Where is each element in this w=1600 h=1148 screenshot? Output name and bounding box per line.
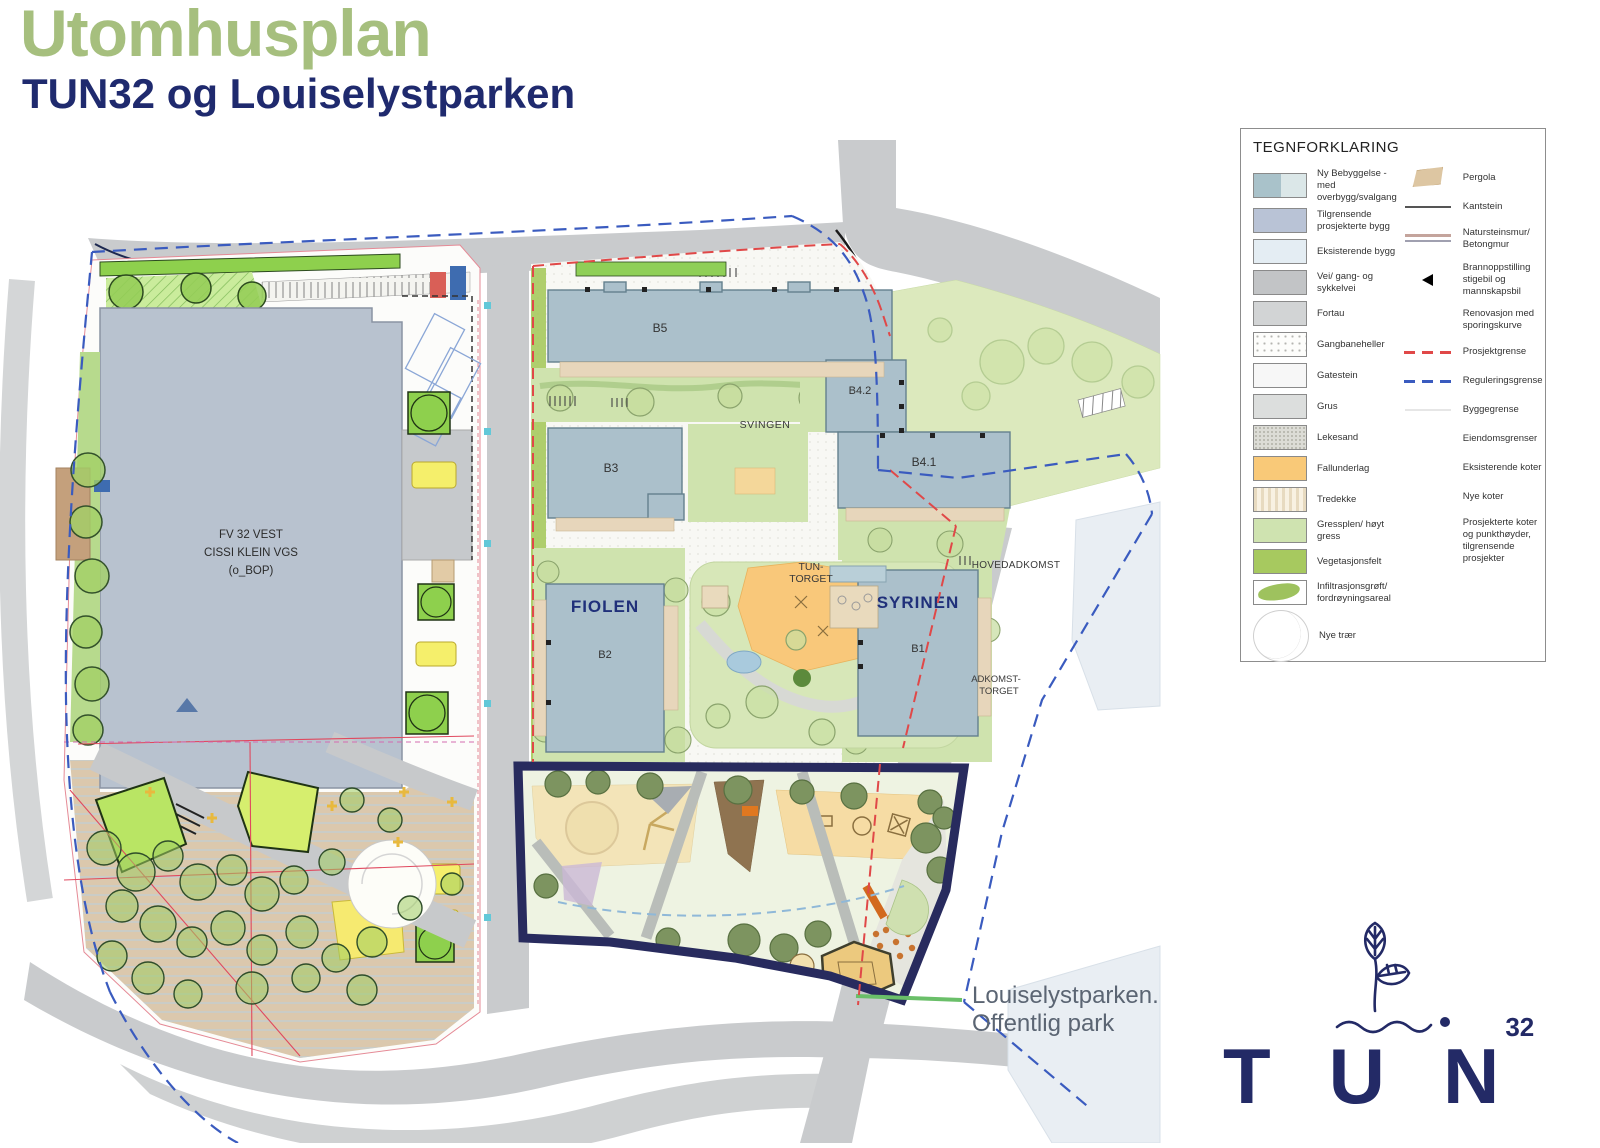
legend-item: Fallunderlag bbox=[1253, 455, 1397, 483]
legend-swatch bbox=[1253, 425, 1307, 450]
legend-item-label: Brannoppstilling stigebil og mannskapsbi… bbox=[1463, 262, 1543, 298]
legend-swatch bbox=[1253, 239, 1307, 264]
container-blue bbox=[450, 266, 466, 300]
label-fiolen: FIOLEN bbox=[571, 597, 639, 616]
legend-item: Eksisterende koter bbox=[1403, 459, 1543, 477]
legend-item: Lekesand bbox=[1253, 424, 1397, 452]
legend-item: Kantstein bbox=[1403, 198, 1543, 216]
legend-box: TEGNFORKLARING Ny Bebyggelse - med overb… bbox=[1240, 128, 1546, 662]
legend-swatch bbox=[1253, 208, 1307, 233]
legend-item-label: Pergola bbox=[1463, 172, 1496, 184]
legend-item-label: Natursteinsmur/ Betongmur bbox=[1463, 227, 1543, 251]
legend-item-label: Vegetasjonsfelt bbox=[1317, 556, 1381, 568]
label-syrinen: SYRINEN bbox=[877, 593, 960, 612]
legend-item-label: Vei/ gang- og sykkelvei bbox=[1317, 271, 1397, 295]
legend-title: TEGNFORKLARING bbox=[1253, 139, 1537, 156]
annotation-line2: Offentlig park bbox=[972, 1010, 1115, 1037]
legend-symbol bbox=[1403, 532, 1453, 550]
page-title: Utomhusplan bbox=[20, 0, 575, 66]
legend-swatch bbox=[1253, 270, 1307, 295]
legend-item: Prosjekterte koter og punkthøyder, tilgr… bbox=[1403, 517, 1543, 565]
school-site: FV 32 VEST CISSI KLEIN VGS (o_BOP) bbox=[56, 245, 481, 1062]
legend-item-label: Renovasjon med sporingskurve bbox=[1463, 308, 1543, 332]
legend-symbol bbox=[1403, 488, 1453, 506]
legend-item-label: Prosjektgrense bbox=[1463, 346, 1526, 358]
label-tun-torget-2: TORGET bbox=[789, 573, 833, 585]
school-building: FV 32 VEST CISSI KLEIN VGS (o_BOP) bbox=[100, 308, 402, 788]
legend-symbol bbox=[1403, 198, 1453, 216]
legend-item: Reguleringsgrense bbox=[1403, 372, 1543, 390]
legend-item-label: Nye koter bbox=[1463, 491, 1504, 503]
legend-item: Prosjektgrense bbox=[1403, 343, 1543, 361]
legend-symbol bbox=[1403, 372, 1453, 390]
legend-item-label: Infiltrasjonsgrøft/ fordrøyningsareal bbox=[1317, 581, 1397, 605]
existing-buildings bbox=[1008, 502, 1160, 1143]
legend-item: Fortau bbox=[1253, 300, 1397, 328]
legend-item-label: Prosjekterte koter og punkthøyder, tilgr… bbox=[1463, 517, 1543, 565]
legend-swatch bbox=[1253, 549, 1307, 574]
legend-swatch bbox=[1253, 580, 1307, 605]
logo-text: TUN bbox=[1223, 1032, 1557, 1120]
legend-item: Pergola bbox=[1403, 168, 1543, 187]
legend-item: Gangbaneheller bbox=[1253, 331, 1397, 359]
legend-item-label: Fallunderlag bbox=[1317, 463, 1369, 475]
legend-item: Grus bbox=[1253, 393, 1397, 421]
legend-item-label: Gangbaneheller bbox=[1317, 339, 1385, 351]
label-b41: B4.1 bbox=[912, 455, 937, 469]
legend-swatch bbox=[1253, 610, 1309, 662]
legend-item: Gatestein bbox=[1253, 362, 1397, 390]
page-subtitle: TUN32 og Louiselystparken bbox=[22, 70, 575, 118]
legend-item-label: Tilgrensende prosjekterte bygg bbox=[1317, 209, 1397, 233]
legend-item: Renovasjon med sporingskurve bbox=[1403, 308, 1543, 332]
legend-item-label: Fortau bbox=[1317, 308, 1344, 320]
legend-item-label: Kantstein bbox=[1463, 201, 1503, 213]
pond bbox=[727, 651, 761, 673]
legend-item-label: Ny Bebyggelse - med overbygg/svalgang bbox=[1317, 168, 1397, 204]
legend-item: Infiltrasjonsgrøft/ fordrøyningsareal bbox=[1253, 579, 1397, 607]
legend-swatch bbox=[1253, 394, 1307, 419]
legend-item: Nye koter bbox=[1403, 488, 1543, 506]
school-label-line3: (o_BOP) bbox=[229, 565, 274, 577]
legend-left-column: Ny Bebyggelse - med overbygg/svalgang Ti… bbox=[1253, 168, 1397, 665]
label-b1: B1 bbox=[911, 643, 924, 655]
legend-symbol bbox=[1403, 343, 1453, 361]
legend-swatch bbox=[1253, 173, 1307, 198]
legend-symbol bbox=[1403, 271, 1453, 289]
legend-item: Ny Bebyggelse - med overbygg/svalgang bbox=[1253, 168, 1397, 204]
legend-item-label: Eksisterende bygg bbox=[1317, 246, 1395, 258]
legend-item-label: Reguleringsgrense bbox=[1463, 375, 1543, 387]
louiselystparken bbox=[518, 766, 964, 1000]
page-header: Utomhusplan TUN32 og Louiselystparken bbox=[20, 0, 575, 118]
label-tun-torget-1: TUN- bbox=[798, 561, 824, 573]
label-adkomst-torget-2: TORGET bbox=[979, 686, 1019, 697]
plant-icon bbox=[1313, 915, 1463, 1035]
school-label-line2: CISSI KLEIN VGS bbox=[204, 547, 298, 559]
legend-swatch bbox=[1253, 301, 1307, 326]
container-red bbox=[430, 272, 446, 298]
label-b5: B5 bbox=[653, 321, 668, 335]
logo-wordmark: TUN32 bbox=[1223, 1037, 1586, 1115]
legend-item-label: Nye trær bbox=[1319, 630, 1356, 642]
legend-symbol bbox=[1403, 230, 1453, 248]
legend-swatch bbox=[1253, 332, 1307, 357]
legend-item-label: Eksisterende koter bbox=[1463, 462, 1542, 474]
trapp-p-kjeller bbox=[830, 566, 886, 582]
legend-swatch bbox=[1253, 456, 1307, 481]
legend-symbol bbox=[1403, 168, 1453, 187]
legend-item: Gressplen/ høyt gress bbox=[1253, 517, 1397, 545]
label-b2: B2 bbox=[598, 649, 611, 661]
legend-item-label: Grus bbox=[1317, 401, 1338, 413]
legend-symbol bbox=[1403, 430, 1453, 448]
legend-symbol bbox=[1403, 459, 1453, 477]
legend-swatch bbox=[1253, 363, 1307, 388]
label-svingen: SVINGEN bbox=[740, 419, 791, 431]
legend-item: Vei/ gang- og sykkelvei bbox=[1253, 269, 1397, 297]
legend-item: Eksisterende bygg bbox=[1253, 238, 1397, 266]
building-b41 bbox=[838, 432, 1010, 508]
legend-swatch bbox=[1253, 518, 1307, 543]
school-label-line1: FV 32 VEST bbox=[219, 529, 283, 541]
legend-item-label: Eiendomsgrenser bbox=[1463, 433, 1537, 445]
building-b5 bbox=[548, 290, 892, 362]
label-hovedadkomst: HOVEDADKOMST bbox=[972, 560, 1061, 571]
legend-right-column: Pergola Kantstein Natursteinsmur/ Betong… bbox=[1403, 168, 1543, 665]
tun32-logo: TUN32 bbox=[1195, 915, 1565, 1130]
legend-item: Eiendomsgrenser bbox=[1403, 430, 1543, 448]
legend-symbol bbox=[1403, 401, 1453, 419]
legend-item: Tredekke bbox=[1253, 486, 1397, 514]
legend-item: Byggegrense bbox=[1403, 401, 1543, 419]
legend-item-label: Gressplen/ høyt gress bbox=[1317, 519, 1397, 543]
legend-item-label: Tredekke bbox=[1317, 494, 1356, 506]
legend-item: Vegetasjonsfelt bbox=[1253, 548, 1397, 576]
legend-item-label: Byggegrense bbox=[1463, 404, 1519, 416]
legend-item-label: Gatestein bbox=[1317, 370, 1358, 382]
annotation-line1: Louiselystparken. bbox=[972, 982, 1159, 1009]
logo-superscript: 32 bbox=[1505, 1012, 1534, 1042]
legend-item: Brannoppstilling stigebil og mannskapsbi… bbox=[1403, 262, 1543, 298]
legend-item: Nye trær bbox=[1253, 610, 1397, 662]
label-adkomst-torget-1: ADKOMST- bbox=[971, 674, 1021, 685]
legend-swatch bbox=[1253, 487, 1307, 512]
label-b42: B4.2 bbox=[849, 385, 872, 397]
legend-item: Tilgrensende prosjekterte bygg bbox=[1253, 207, 1397, 235]
legend-symbol bbox=[1403, 311, 1453, 329]
legend-item-label: Lekesand bbox=[1317, 432, 1358, 444]
legend-item: Natursteinsmur/ Betongmur bbox=[1403, 227, 1543, 251]
label-b3: B3 bbox=[604, 461, 619, 475]
